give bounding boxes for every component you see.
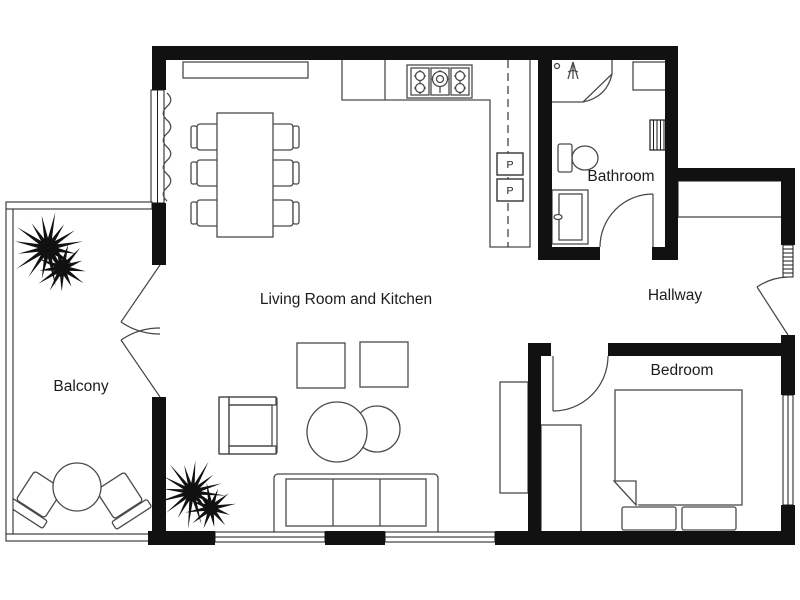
bedroom-door [553, 356, 608, 411]
wall-left-upper [152, 46, 166, 90]
dining-chair [271, 160, 299, 186]
pillow [622, 507, 676, 530]
bed [613, 390, 742, 530]
sofa [274, 474, 438, 539]
sideboard [183, 62, 308, 78]
balcony-french-doors [121, 265, 160, 397]
bathroom-cabinet [633, 62, 667, 90]
armchair [219, 397, 277, 454]
balcony-table [53, 463, 101, 511]
plant-balcony [15, 212, 86, 291]
wall-bathroom-right [665, 60, 678, 248]
wardrobe [541, 425, 581, 538]
side-table [360, 342, 408, 387]
dining-chair [191, 200, 219, 226]
kitchen-appliance-2: P [497, 179, 523, 201]
stove [407, 65, 472, 98]
dining-chair [271, 200, 299, 226]
room-label-balcony: Balcony [53, 378, 108, 395]
balcony-chair [92, 470, 151, 530]
room-label-hallway: Hallway [648, 287, 703, 304]
room-label-bathroom: Bathroom [587, 168, 654, 185]
bathroom-door [600, 194, 653, 247]
wall-top [152, 46, 678, 60]
kitchen-appliance-1: P [497, 153, 523, 175]
dining-table [217, 113, 273, 237]
room-label-bedroom: Bedroom [651, 362, 714, 379]
floor-plan-canvas: P P [0, 0, 800, 600]
washing-machine [552, 190, 588, 244]
shower [552, 60, 612, 102]
radiator [650, 120, 667, 150]
dining-chair [191, 124, 219, 150]
wall-bedroom-top [608, 343, 795, 356]
wall-bottom-b [325, 531, 385, 545]
wall-bottom-a [148, 531, 215, 545]
shower-head-icon [555, 64, 560, 69]
window-entrance-sidelight [783, 245, 793, 277]
appliance-label: P [506, 185, 513, 197]
wall-bathroom-bottom [538, 247, 600, 260]
window-bedroom [783, 395, 793, 505]
wall-right-lower [781, 505, 795, 545]
wall-left-mid [152, 203, 166, 265]
window-bottom-right [385, 532, 495, 542]
dining-set [191, 113, 299, 237]
shower-symbol-icon [568, 62, 578, 79]
wall-bathroom-left [538, 60, 552, 260]
window-left [151, 90, 171, 203]
shelf [500, 382, 528, 493]
entrance-door [757, 277, 788, 335]
wall-bathroom-pillar [652, 247, 678, 260]
wall-hallway-top [665, 168, 795, 181]
pillow [682, 507, 736, 530]
dining-chair [191, 160, 219, 186]
plant-living-room [157, 461, 236, 529]
coffee-table-large [307, 402, 367, 462]
hallway-closet [678, 181, 787, 217]
wall-left-lower [152, 397, 166, 543]
wall-bedroom-left [528, 343, 541, 543]
window-bottom-left [215, 532, 325, 542]
room-label-living-kitchen: Living Room and Kitchen [260, 291, 432, 308]
side-table [297, 343, 345, 388]
dining-chair [271, 124, 299, 150]
appliance-label: P [506, 159, 513, 171]
